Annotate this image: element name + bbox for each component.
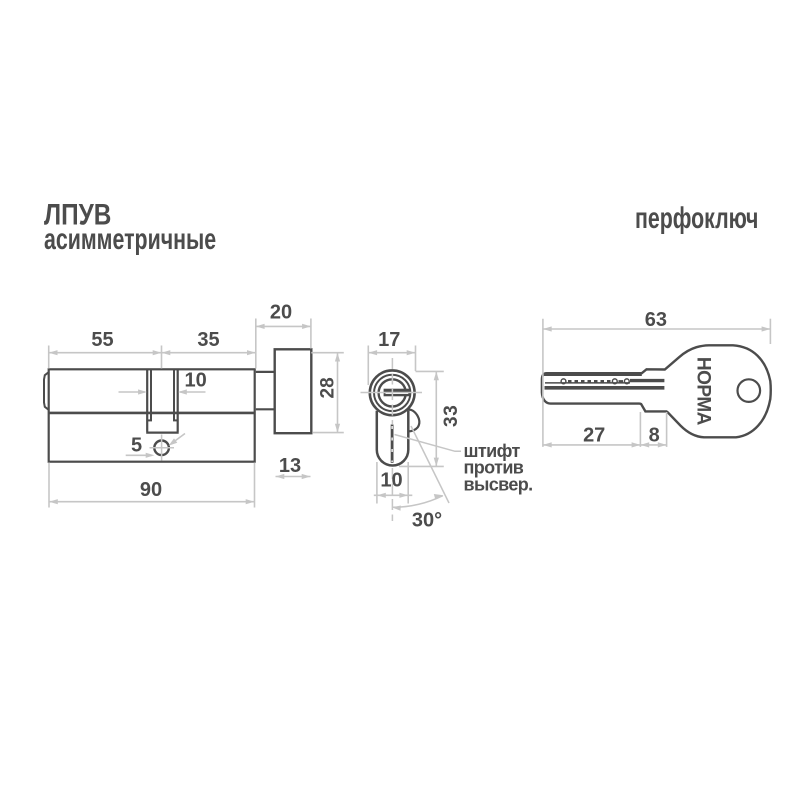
svg-text:90: 90 [140,479,162,501]
svg-text:20: 20 [270,302,292,324]
svg-text:17: 17 [378,329,400,351]
svg-text:10: 10 [185,370,207,392]
svg-text:5: 5 [131,435,142,457]
svg-text:8: 8 [649,425,660,447]
svg-text:33: 33 [441,405,462,427]
svg-text:63: 63 [645,309,667,331]
svg-text:30°: 30° [412,510,442,532]
svg-text:55: 55 [91,329,113,351]
svg-text:35: 35 [197,329,219,351]
svg-text:НОРМА: НОРМА [693,357,714,426]
svg-text:27: 27 [583,425,605,447]
svg-text:асимметричные: асимметричные [44,224,216,256]
svg-text:28: 28 [318,377,339,398]
svg-text:высвер.: высвер. [464,474,533,494]
svg-text:10: 10 [380,470,402,492]
svg-text:перфоключ: перфоключ [635,203,758,235]
svg-text:13: 13 [279,455,301,477]
